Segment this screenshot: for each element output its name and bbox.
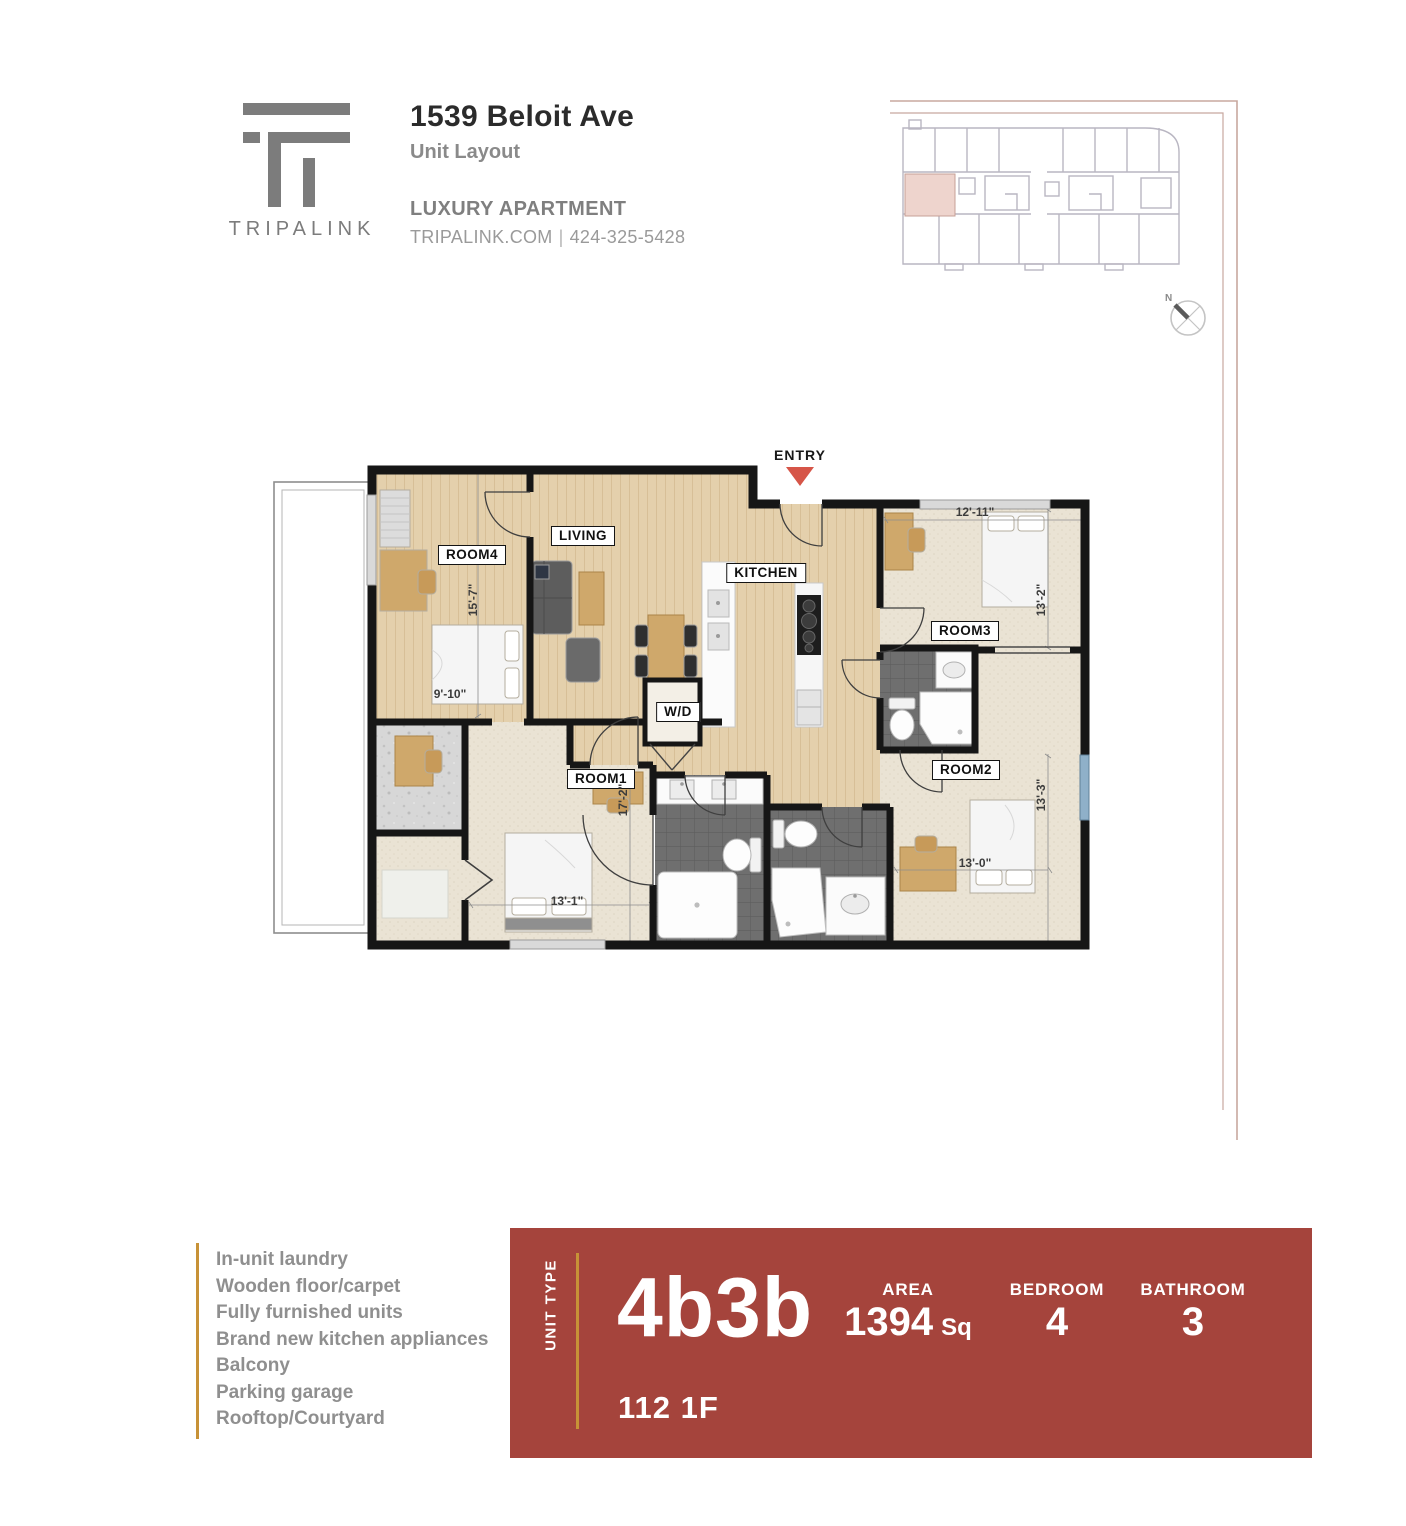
amenity-item: Wooden floor/carpet (216, 1274, 488, 1301)
amenities-list: In-unit laundry Wooden floor/carpet Full… (196, 1243, 488, 1439)
dim-room2-height: 13'-3" (1034, 779, 1048, 812)
phone-text: 424-325-5428 (570, 227, 686, 247)
unit-type-value: 4b3b (617, 1260, 813, 1357)
contact-separator: | (553, 227, 570, 247)
label-living: LIVING (551, 526, 615, 546)
tripalink-logo-text: TRIPALINK (222, 218, 382, 241)
balcony (274, 482, 372, 933)
stat-area-value: 1394 Sq (844, 1300, 972, 1350)
page-title: 1539 Beloit Ave (410, 100, 634, 134)
tagline: LUXURY APARTMENT (410, 198, 626, 221)
dim-room3-width: 12'-11" (956, 505, 995, 519)
floor-plan: ROOM4 LIVING KITCHEN ROOM3 ROOM2 ROOM1 W… (260, 440, 1100, 960)
stat-bedroom-value: 4 (1010, 1300, 1104, 1344)
amenity-item: Parking garage (216, 1380, 488, 1407)
stat-bathroom-value: 3 (1140, 1300, 1245, 1344)
dim-room1-height: 17'-2" (616, 784, 630, 817)
stat-area: AREA 1394 Sq (844, 1280, 972, 1350)
stat-bathroom: BATHROOM 3 (1140, 1280, 1245, 1344)
building-key-plan (895, 108, 1195, 278)
amenity-item: Balcony (216, 1353, 488, 1380)
compass-icon: N (1155, 285, 1219, 349)
svg-text:N: N (1165, 293, 1172, 304)
amenity-item: In-unit laundry (216, 1247, 488, 1274)
label-room2: ROOM2 (932, 760, 1000, 780)
stat-bedroom: BEDROOM 4 (1010, 1280, 1104, 1344)
tripalink-logo-icon (240, 95, 355, 215)
contact-line: TRIPALINK.COM|424-325-5428 (410, 227, 685, 248)
dim-room3-height: 13'-2" (1034, 584, 1048, 617)
flyer-page: { "header": { "logo_text": "TRIPALINK", … (0, 0, 1406, 1526)
unit-number: 112 1F (618, 1390, 719, 1426)
page-subtitle: Unit Layout (410, 141, 520, 164)
label-kitchen: KITCHEN (726, 563, 806, 583)
entry-label: ENTRY (774, 447, 826, 463)
stat-bedroom-label: BEDROOM (1010, 1280, 1104, 1300)
dim-room2-width: 13'-0" (959, 856, 992, 870)
label-washer-dryer: W/D (656, 702, 700, 722)
amenity-item: Fully furnished units (216, 1300, 488, 1327)
entry-arrow-icon (786, 467, 814, 486)
banner-gold-divider (576, 1253, 579, 1429)
website-text: TRIPALINK.COM (410, 227, 553, 247)
dim-room4-width: 9'-10" (434, 687, 467, 701)
dim-room4-height: 15'-7" (466, 584, 480, 617)
amenity-item: Brand new kitchen appliances (216, 1327, 488, 1354)
carpet-floor-room2-b (975, 650, 1085, 750)
amenity-item: Rooftop/Courtyard (216, 1406, 488, 1433)
label-room4: ROOM4 (438, 545, 506, 565)
stat-bathroom-label: BATHROOM (1140, 1280, 1245, 1300)
room2-window (1080, 755, 1089, 820)
unit-type-label: UNIT TYPE (543, 1259, 560, 1351)
highlighted-unit (905, 174, 955, 216)
dim-room1-width: 13'-1" (551, 894, 584, 908)
label-room3: ROOM3 (931, 621, 999, 641)
stat-area-label: AREA (844, 1280, 972, 1300)
